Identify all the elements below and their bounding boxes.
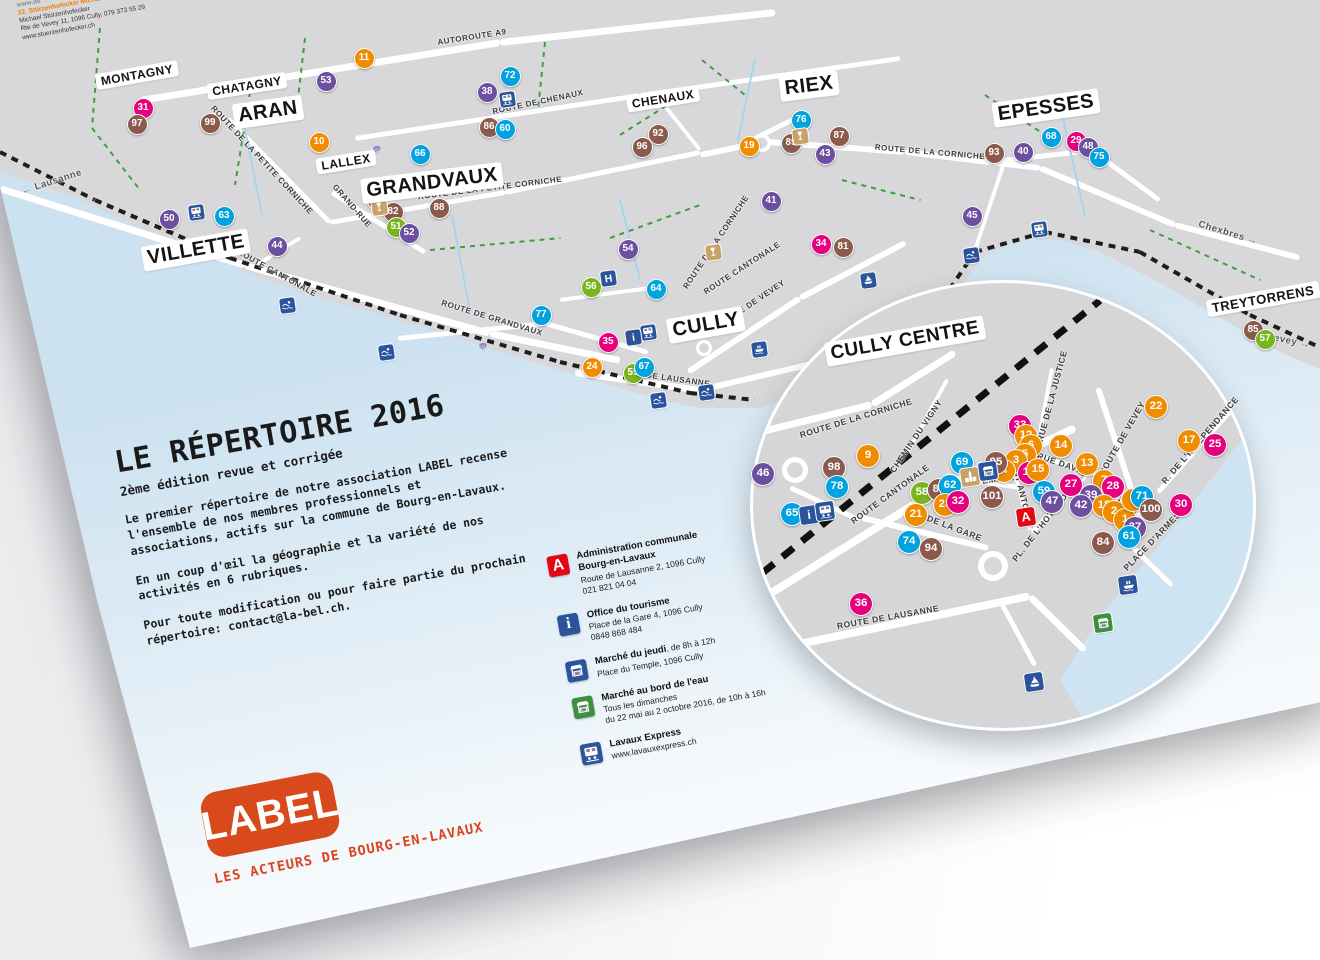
poster-sheet: AUTOROUTE A9ROUTE DE CHENAUXROUTE DE LA … [0, 0, 1320, 960]
roundabout [696, 340, 712, 356]
road [870, 349, 957, 407]
road [1097, 490, 1149, 515]
title-block: LE RÉPERTOIRE 2016 2ème édition revue et… [112, 378, 532, 650]
market-green-icon [571, 695, 595, 719]
label-logo-block: LABEL LES ACTEURS DE BOURG-EN-LAVAUX [198, 743, 485, 888]
road [757, 401, 873, 436]
road [1027, 450, 1108, 480]
market-icon [565, 659, 589, 683]
roundabout [753, 134, 771, 152]
road [1038, 368, 1054, 433]
info-icon: i [557, 612, 581, 636]
swim-icon [378, 344, 395, 361]
roundabout [978, 551, 1008, 581]
road [1030, 466, 1094, 533]
road [1028, 594, 1088, 653]
road [998, 599, 1037, 666]
admin-a-icon: A [546, 553, 570, 577]
road [1012, 469, 1032, 530]
train-icon [579, 741, 603, 765]
poster-shadow-wrap: AUTOROUTE A9ROUTE DE CHENAUXROUTE DE LA … [0, 0, 1320, 960]
swim-icon [279, 297, 296, 314]
poster-photo: AUTOROUTE A9ROUTE DE CHENAUXROUTE DE LA … [0, 0, 1320, 960]
label-logo: LABEL [198, 769, 342, 859]
roundabout [782, 457, 808, 483]
legend: A Administration communale Bourg-en-Lava… [546, 487, 979, 780]
poster-content: AUTOROUTE A9ROUTE DE CHENAUXROUTE DE LA … [0, 0, 1320, 960]
label-logo-text: LABEL [198, 779, 342, 850]
